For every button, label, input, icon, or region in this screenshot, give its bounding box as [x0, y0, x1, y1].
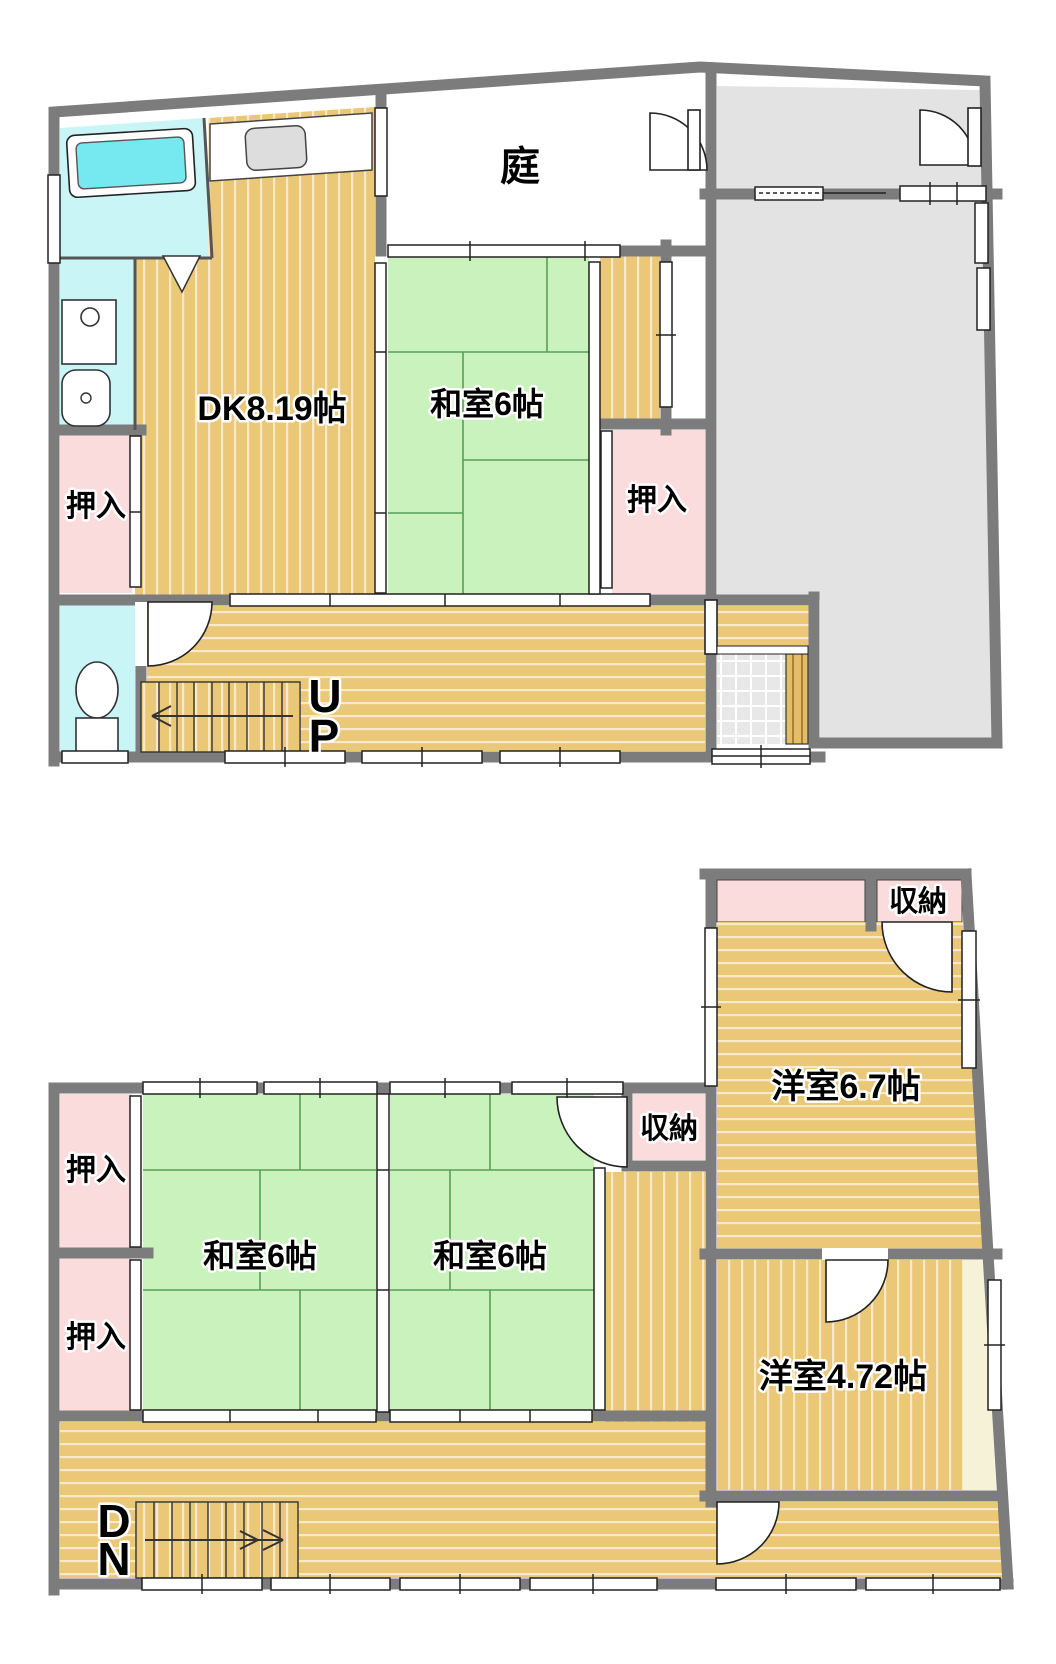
storage-mid-label: 収納	[640, 1111, 698, 1145]
fusuma	[594, 1168, 605, 1410]
floor-plan-drawing: DK8.19帖 和室6帖 庭 押入 押入 U P	[0, 0, 1056, 1664]
western-67-label: 洋室6.7帖	[771, 1067, 920, 1106]
laundry-fixture	[62, 370, 110, 426]
window	[900, 186, 986, 201]
toilet	[76, 662, 118, 752]
door-leaf-earth-room	[968, 108, 981, 166]
floor1: DK8.19帖 和室6帖 庭 押入 押入 U P	[48, 67, 1001, 768]
window	[375, 108, 387, 196]
fusuma	[377, 1094, 389, 1412]
bathtub	[66, 128, 196, 198]
sink	[62, 300, 116, 364]
stairs-up	[141, 682, 300, 752]
dk-label: DK8.19帖	[197, 390, 346, 428]
fusuma	[601, 431, 612, 588]
stove	[245, 125, 307, 171]
vestibule	[711, 606, 810, 648]
kitchen-counter	[210, 113, 372, 181]
stairs-dn-label-n: N	[97, 1533, 130, 1585]
engawa-strip	[600, 251, 660, 424]
closet-lower-label: 押入	[66, 1321, 126, 1354]
sliding-doors	[390, 1410, 592, 1422]
stairs-down	[136, 1502, 298, 1578]
washitsu-left-label: 和室6帖	[203, 1238, 317, 1274]
door-leaf-472	[822, 1248, 888, 1260]
stairs-up-label-p: P	[309, 710, 340, 762]
closet-left-label-f1: 押入	[66, 490, 126, 523]
sliding-doors	[143, 1410, 376, 1422]
storage-top-label: 収納	[889, 884, 947, 918]
door-opening	[135, 602, 147, 666]
fusuma	[589, 262, 600, 594]
door-leaf-garden	[688, 110, 700, 170]
window	[48, 175, 60, 263]
washitsu-right-label: 和室6帖	[433, 1238, 547, 1274]
closet-strip-top	[717, 880, 865, 922]
floor2: 押入 押入 和室6帖 和室6帖 収納 収納 洋室6.7帖 洋室4.72帖 D N	[54, 874, 1008, 1594]
closet-upper-label: 押入	[66, 1154, 126, 1187]
sliding-doors-hall	[230, 594, 650, 606]
window	[62, 751, 128, 763]
fusuma	[375, 263, 386, 593]
fusuma	[130, 1096, 141, 1247]
corridor-bridge	[705, 1502, 717, 1578]
floor-plan-page: DK8.19帖 和室6帖 庭 押入 押入 U P	[0, 0, 1056, 1664]
window	[975, 203, 988, 263]
window	[977, 268, 990, 330]
washitsu-f1	[388, 257, 589, 600]
western-472-label: 洋室4.72帖	[759, 1357, 927, 1396]
washitsu-label-f1: 和室6帖	[430, 386, 544, 422]
fusuma	[130, 1260, 141, 1410]
genkan-step	[786, 654, 808, 744]
corridor-mid	[605, 1172, 705, 1422]
genkan-step-edge	[717, 646, 808, 654]
genkan-tile	[717, 654, 786, 744]
closet-right-label-f1: 押入	[627, 484, 687, 517]
door-vestibule	[705, 600, 717, 654]
garden-label: 庭	[500, 145, 540, 189]
